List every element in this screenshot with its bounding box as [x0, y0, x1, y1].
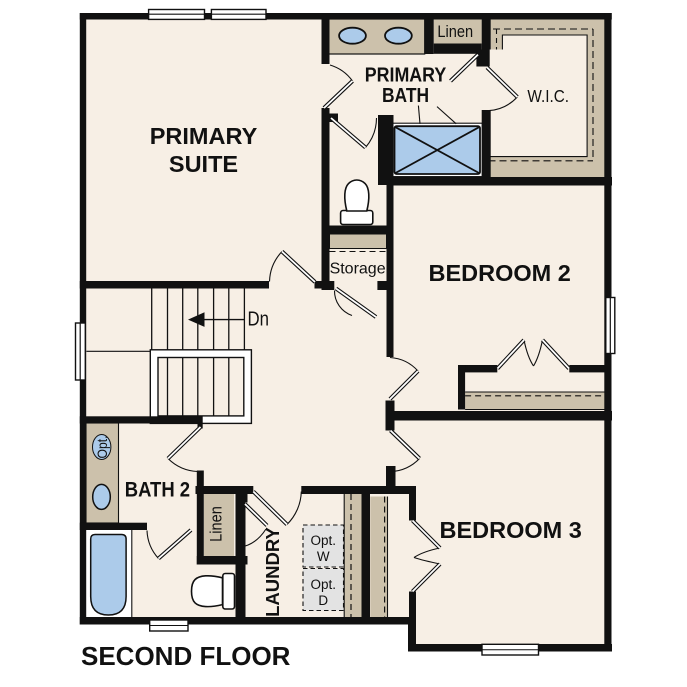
svg-text:BATH 2: BATH 2: [125, 478, 190, 501]
svg-text:W.I.C.: W.I.C.: [527, 86, 569, 106]
svg-text:LAUNDRY: LAUNDRY: [262, 526, 283, 616]
svg-text:W: W: [317, 549, 330, 564]
svg-text:D: D: [318, 593, 328, 608]
svg-text:Opt.: Opt.: [94, 436, 110, 459]
svg-text:BATH: BATH: [382, 85, 429, 108]
svg-text:Storage: Storage: [330, 261, 386, 278]
svg-text:Linen: Linen: [208, 506, 226, 542]
svg-text:PRIMARY: PRIMARY: [150, 123, 258, 149]
svg-text:SECOND FLOOR: SECOND FLOOR: [81, 641, 291, 671]
svg-text:Opt.: Opt.: [310, 577, 336, 592]
svg-text:BEDROOM 2: BEDROOM 2: [429, 260, 571, 286]
svg-text:BEDROOM 3: BEDROOM 3: [440, 517, 582, 543]
svg-text:Linen: Linen: [437, 23, 473, 41]
svg-text:SUITE: SUITE: [169, 151, 238, 177]
svg-text:Dn: Dn: [248, 307, 269, 330]
svg-text:Opt.: Opt.: [310, 533, 336, 548]
